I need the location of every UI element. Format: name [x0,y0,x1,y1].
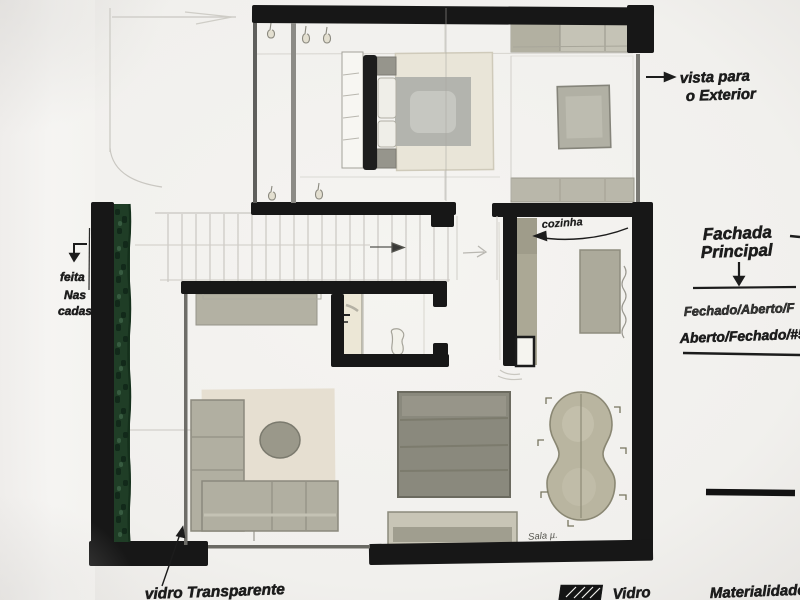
svg-text:Nas: Nas [64,288,86,302]
svg-text:Sala µ.: Sala µ. [528,530,558,543]
svg-text:cadas: cadas [58,304,92,318]
svg-text:Principal: Principal [700,240,774,262]
svg-text:Materialidade: Materialidade [710,582,800,600]
svg-text:o Exterior: o Exterior [686,86,758,105]
svg-text:vista para: vista para [680,68,751,87]
svg-text:feita: feita [60,270,85,284]
svg-text:Vidro: Vidro [612,584,651,600]
